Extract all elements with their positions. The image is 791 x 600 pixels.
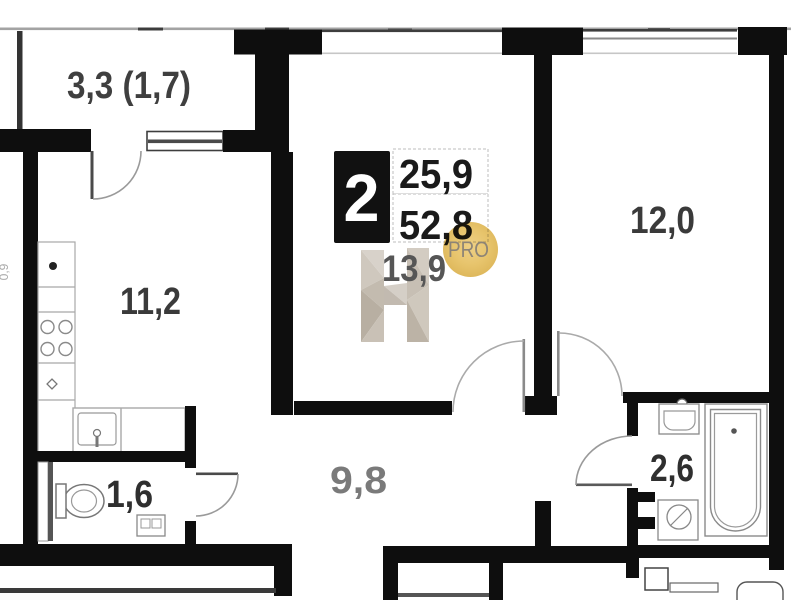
svg-text:1,6: 1,6 [106, 474, 153, 516]
svg-text:25,9: 25,9 [399, 151, 473, 197]
svg-text:9,8: 9,8 [330, 460, 387, 502]
svg-text:3,3 (1,7): 3,3 (1,7) [67, 65, 191, 107]
svg-text:13,9: 13,9 [382, 248, 446, 289]
svg-text:11,2: 11,2 [120, 281, 181, 323]
svg-text:2: 2 [344, 161, 380, 236]
svg-text:12,0: 12,0 [630, 200, 695, 242]
svg-text:PRO: PRO [448, 237, 489, 262]
svg-text:0,9: 0,9 [0, 263, 11, 280]
svg-text:2,6: 2,6 [650, 448, 694, 490]
